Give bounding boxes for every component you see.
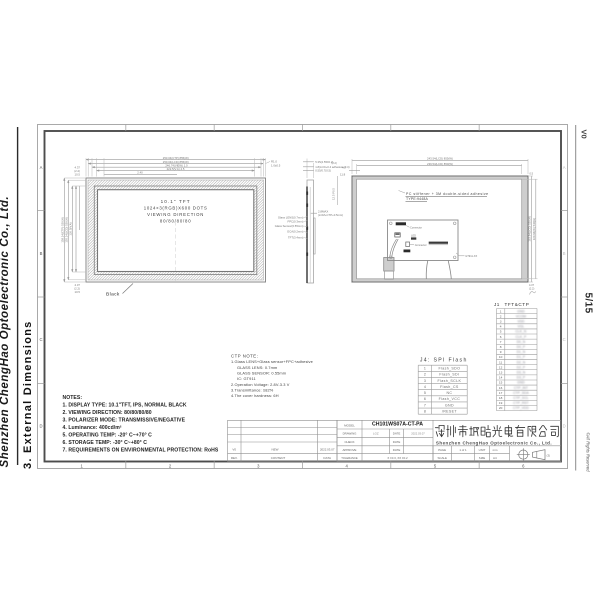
svg-text:©All Rights Reserved: ©All Rights Reserved — [586, 433, 591, 473]
svg-text:TOLERANCE: TOLERANCE — [341, 456, 358, 460]
svg-text:LGZ: LGZ — [373, 432, 379, 436]
svg-text:2: 2 — [500, 314, 502, 318]
svg-text:A: A — [40, 165, 43, 170]
svg-text:V0: V0 — [580, 130, 589, 139]
svg-text:FPC(0.3mm): FPC(0.3mm) — [287, 220, 303, 224]
svg-text:1 of 1: 1 of 1 — [459, 448, 467, 452]
svg-text:DRAWING: DRAWING — [343, 432, 358, 436]
svg-text:222.5(V.A) 4.5: 222.5(V.A) 4.5 — [167, 167, 185, 171]
svg-text:6: 6 — [500, 335, 502, 339]
svg-text:3. POLARIZER MODE: TRANSMISSIV: 3. POLARIZER MODE: TRANSMISSIVE/NEGATIVE — [63, 418, 186, 424]
svg-text:GND: GND — [517, 381, 525, 385]
svg-text:2022.03.07: 2022.03.07 — [320, 448, 335, 452]
svg-text:5: 5 — [500, 330, 502, 334]
svg-text:243.54(LCD) 855(W): 243.54(LCD) 855(W) — [427, 157, 453, 161]
svg-text:5. OPERATING TEMP: -20° C~+70°: 5. OPERATING TEMP: -20° C~+70° C — [63, 433, 153, 439]
svg-text:160.94(W) 530(H): 160.94(W) 530(H) — [532, 218, 536, 240]
svg-text:Flash_SDO: Flash_SDO — [439, 367, 461, 371]
svg-text:CTP_VDD: CTP_VDD — [513, 406, 529, 410]
svg-text:CHECK: CHECK — [344, 440, 354, 444]
svg-text:2.Operation Voltage: 2.8V-3.3: 2.Operation Voltage: 2.8V-3.3 V — [231, 382, 290, 387]
svg-text:16: 16 — [499, 386, 503, 390]
svg-text:9: 9 — [500, 350, 502, 354]
svg-text:CLK_P: CLK_P — [516, 335, 527, 339]
svg-text:7: 7 — [500, 340, 502, 344]
svg-text:0.5: 0.5 — [530, 172, 534, 176]
svg-text:SIZE: SIZE — [479, 456, 485, 460]
svg-text:12.5 P0.5: 12.5 P0.5 — [332, 188, 336, 200]
svg-text:DATE: DATE — [393, 448, 401, 452]
svg-text:Connector: Connector — [415, 243, 427, 247]
svg-text:CONTENT: CONTENT — [271, 456, 286, 460]
svg-text:NEW: NEW — [272, 448, 279, 452]
svg-text:VIEWING DIRECTION: VIEWING DIRECTION — [147, 212, 204, 217]
svg-text:3: 3 — [500, 319, 502, 323]
svg-text:PAGE: PAGE — [438, 448, 446, 452]
svg-text:1.0±0.5: 1.0±0.5 — [271, 164, 281, 168]
svg-text:1. DISPLAY TYPE: 10.1"TFT, IP: 1. DISPLAY TYPE: 10.1"TFT, IPS, NORMAL B… — [63, 403, 187, 409]
svg-text:10: 10 — [499, 355, 503, 359]
svg-text:CTP_INT: CTP_INT — [514, 386, 528, 390]
svg-text:1024×3(RGB)X600 DOTS: 1024×3(RGB)X600 DOTS — [144, 206, 208, 211]
svg-text:CTP_SDA: CTP_SDA — [513, 391, 529, 395]
svg-text:7: 7 — [424, 403, 426, 407]
svg-text:17: 17 — [499, 391, 503, 395]
svg-text:MODEL: MODEL — [344, 423, 355, 427]
svg-text:TFT(3.4mm): TFT(3.4mm) — [288, 236, 304, 240]
svg-text:GLASS SENSOR: 0.55mm: GLASS SENSOR: 0.55mm — [237, 371, 286, 376]
svg-text:GND: GND — [517, 309, 525, 313]
svg-text:A: A — [563, 165, 566, 170]
svg-text:5: 5 — [424, 391, 426, 395]
svg-text:1: 1 — [500, 309, 502, 313]
svg-text:D: D — [563, 423, 566, 428]
svg-text:Connector: Connector — [410, 226, 422, 230]
svg-text:(2.2): (2.2) — [529, 287, 534, 291]
svg-text:APPROVE: APPROVE — [343, 448, 357, 452]
svg-text:C: C — [563, 337, 566, 342]
svg-text:(3): (3) — [547, 453, 551, 457]
svg-text:19: 19 — [499, 401, 503, 405]
svg-text:mm: mm — [493, 448, 498, 452]
svg-text:PC stiffener + 3M double-sided: PC stiffener + 3M double-sided adhesive — [406, 192, 489, 196]
svg-text:14: 14 — [499, 376, 503, 380]
svg-text:4: 4 — [500, 325, 502, 329]
svg-text:4. Luminance: 400cd/m²: 4. Luminance: 400cd/m² — [63, 425, 122, 431]
svg-text:2022.03.07: 2022.03.07 — [411, 432, 425, 436]
svg-text:4.The cover hardness: 6H: 4.The cover hardness: 6H — [231, 393, 279, 398]
svg-text:18: 18 — [499, 396, 503, 400]
svg-text:CH101WS07A-CT-PA: CH101WS07A-CT-PA — [372, 422, 423, 428]
svg-text:1.Glass LENS+Glass sensor+FPC+: 1.Glass LENS+Glass sensor+FPC+adhesive — [231, 359, 313, 364]
svg-text:Flash_SCLK: Flash_SCLK — [438, 379, 462, 383]
svg-text:Flash_SDI: Flash_SDI — [439, 373, 459, 377]
svg-text:B: B — [563, 251, 566, 256]
svg-text:NC: NC — [446, 391, 452, 395]
svg-text:D3_N: D3_N — [517, 371, 526, 375]
svg-text:D1_P: D1_P — [517, 355, 526, 359]
svg-text:Shenzhen ChengHao Optoelectron: Shenzhen ChengHao Optoelectronic Co., Lt… — [0, 196, 11, 468]
svg-text:SCALE: SCALE — [437, 456, 447, 460]
svg-text:11: 11 — [499, 360, 502, 364]
svg-text:7. REQUIREMENTS ON ENVIRONMENT: 7. REQUIREMENTS ON ENVIRONMENTAL PROTECT… — [63, 448, 219, 454]
svg-text:TFT&CTP: TFT&CTP — [505, 302, 530, 307]
svg-text:CLK_N: CLK_N — [515, 330, 526, 334]
svg-text:15: 15 — [499, 381, 503, 385]
svg-text:D: D — [39, 423, 42, 428]
svg-text:12: 12 — [499, 365, 503, 369]
svg-text:20: 20 — [499, 406, 503, 410]
svg-text:3: 3 — [424, 379, 426, 383]
svg-text:(2.2): (2.2) — [332, 161, 337, 165]
svg-text:5/15: 5/15 — [583, 293, 594, 314]
svg-text:CTP NOTE:: CTP NOTE: — [231, 354, 258, 359]
svg-text:CTP_RST: CTP_RST — [513, 401, 528, 405]
svg-text:2: 2 — [424, 373, 426, 377]
svg-text:10.5: 10.5 — [75, 173, 81, 177]
svg-text:239.54(LCD) 850(W): 239.54(LCD) 850(W) — [427, 162, 453, 166]
svg-text:IC: GT911: IC: GT911 — [237, 376, 256, 381]
svg-text:CTP_SCL: CTP_SCL — [513, 396, 528, 400]
svg-text:Flash_CS: Flash_CS — [440, 385, 459, 389]
svg-text:X ±0.3, XX ±0.2: X ±0.3, XX ±0.2 — [387, 456, 408, 460]
svg-text:C: C — [39, 337, 42, 342]
svg-text:D3_P: D3_P — [517, 376, 526, 380]
svg-text:3. External Dimensions: 3. External Dimensions — [22, 320, 34, 469]
svg-text:4.37: 4.37 — [529, 283, 535, 287]
svg-text:A4: A4 — [493, 456, 497, 460]
svg-text:11.8: 11.8 — [340, 173, 346, 177]
svg-text:1: 1 — [424, 367, 426, 371]
svg-text:J1: J1 — [494, 302, 500, 307]
svg-text:TYPE:9448A: TYPE:9448A — [406, 197, 429, 201]
svg-text:D0_N: D0_N — [517, 340, 526, 344]
svg-text:6: 6 — [424, 397, 426, 401]
svg-text:OCA(0.2mm): OCA(0.2mm) — [287, 230, 304, 234]
svg-text:DATE: DATE — [393, 440, 401, 444]
svg-text:GLASS LENS: 0.7mm: GLASS LENS: 0.7mm — [237, 365, 277, 370]
svg-text:126.5(V.A): 126.5(V.A) — [69, 222, 73, 235]
svg-text:4: 4 — [424, 385, 426, 389]
svg-text:Shenzhen ChengHao Optoelectron: Shenzhen ChengHao Optoelectronic Co., Lt… — [436, 440, 552, 445]
svg-text:UNIT: UNIT — [479, 448, 486, 452]
svg-text:D2_P: D2_P — [517, 365, 526, 369]
svg-text:D2_N: D2_N — [517, 360, 526, 364]
svg-text:DATA: DATA — [323, 456, 331, 460]
svg-text:REV.: REV. — [231, 456, 238, 460]
svg-text:B: B — [40, 251, 43, 256]
svg-text:/RESET: /RESET — [442, 409, 458, 413]
svg-text:0.55/0.7(0.5): 0.55/0.7(0.5) — [315, 169, 331, 173]
svg-text:10.1" TFT: 10.1" TFT — [161, 199, 191, 204]
svg-text:VCOM: VCOM — [516, 314, 526, 318]
svg-text:Glass Sensor(0.55mm): Glass Sensor(0.55mm) — [275, 224, 304, 228]
svg-text:VDD: VDD — [517, 319, 525, 323]
svg-text:D1_N: D1_N — [517, 350, 526, 354]
svg-text:13: 13 — [499, 371, 503, 375]
svg-text:4.5: 4.5 — [342, 166, 346, 170]
svg-text:GT911-XX: GT911-XX — [465, 254, 477, 258]
svg-text:Flash_VCC: Flash_VCC — [439, 397, 461, 401]
svg-text:6. STORAGE TEMP: -30° C~+80° C: 6. STORAGE TEMP: -30° C~+80° C — [63, 440, 148, 446]
svg-text:Black: Black — [106, 292, 120, 298]
svg-text:8: 8 — [424, 409, 426, 413]
svg-text:J4: SPI Flash: J4: SPI Flash — [420, 358, 468, 364]
svg-text:8: 8 — [500, 345, 502, 349]
svg-text:2. VIEWING DIRECTION: 80/80/80: 2. VIEWING DIRECTION: 80/80/80/80 — [63, 410, 152, 416]
svg-text:DATE: DATE — [393, 432, 401, 436]
svg-text:3.Transmittance: ≥82%: 3.Transmittance: ≥82% — [231, 388, 274, 393]
svg-text:LED: LED — [411, 233, 416, 237]
svg-text:V0: V0 — [232, 448, 236, 452]
svg-text:VGL: VGL — [518, 325, 525, 329]
svg-text:10.5: 10.5 — [75, 290, 81, 294]
svg-text:(LCM+CTP+0.5mm): (LCM+CTP+0.5mm) — [318, 213, 343, 217]
svg-text:NOTES:: NOTES: — [63, 395, 83, 401]
svg-text:D0_P: D0_P — [517, 345, 526, 349]
svg-text:GND: GND — [445, 403, 454, 407]
svg-text:163.94(LCD) 530(H): 163.94(LCD) 530(H) — [528, 216, 532, 241]
svg-text:2.40: 2.40 — [137, 171, 143, 175]
